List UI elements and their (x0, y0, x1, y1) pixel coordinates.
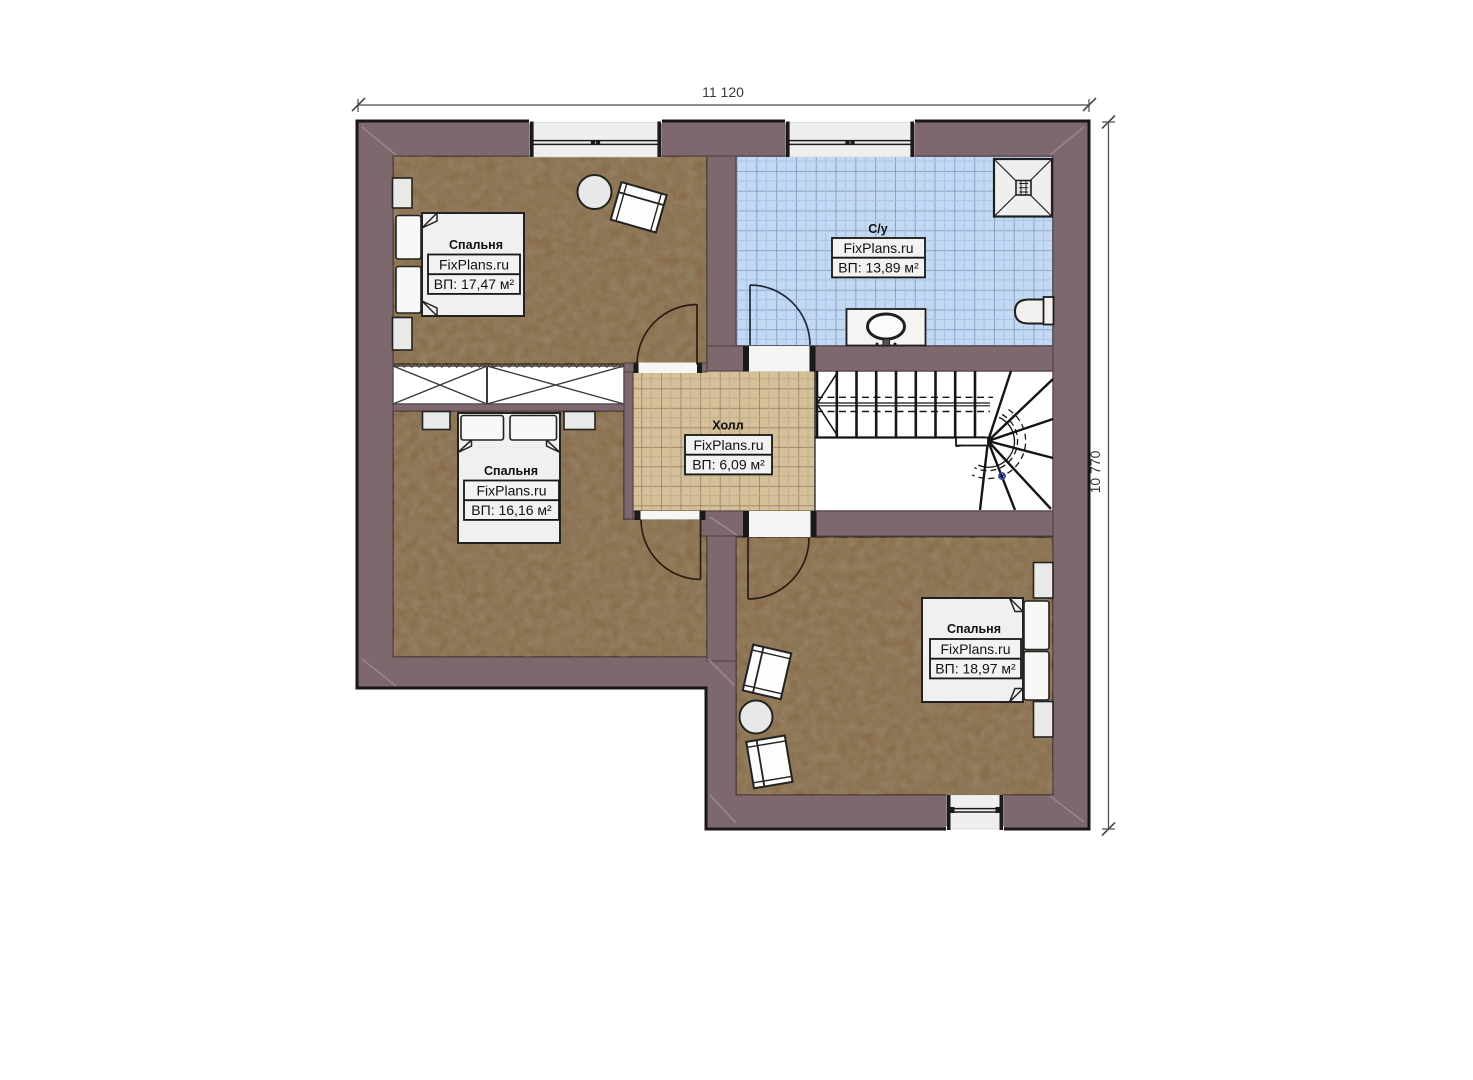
svg-text:10 770: 10 770 (1087, 450, 1103, 493)
svg-text:Холл: Холл (712, 419, 743, 433)
svg-text:11 120: 11 120 (702, 84, 744, 100)
svg-text:FixPlans.ru: FixPlans.ru (843, 240, 913, 256)
svg-text:Спальня: Спальня (484, 464, 538, 478)
svg-text:FixPlans.ru: FixPlans.ru (476, 482, 546, 498)
svg-text:ВП: 17,47 м²: ВП: 17,47 м² (434, 276, 515, 292)
svg-text:FixPlans.ru: FixPlans.ru (940, 641, 1010, 657)
svg-text:FixPlans.ru: FixPlans.ru (439, 256, 509, 272)
svg-text:ВП: 13,89 м²: ВП: 13,89 м² (838, 259, 919, 275)
svg-text:С/у: С/у (868, 222, 888, 236)
svg-text:Спальня: Спальня (449, 238, 503, 252)
svg-text:ВП: 16,16 м²: ВП: 16,16 м² (471, 502, 552, 518)
svg-text:ВП: 6,09 м²: ВП: 6,09 м² (692, 456, 765, 472)
svg-text:ВП: 18,97 м²: ВП: 18,97 м² (935, 660, 1016, 676)
svg-text:FixPlans.ru: FixPlans.ru (693, 437, 763, 453)
svg-text:Спальня: Спальня (947, 622, 1001, 636)
